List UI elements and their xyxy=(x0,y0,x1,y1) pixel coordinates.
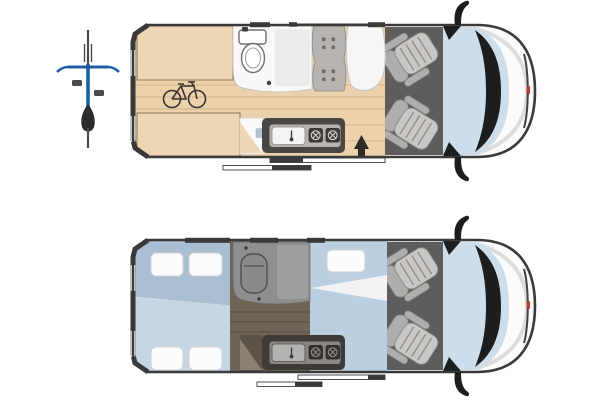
hob-icon xyxy=(309,129,323,143)
sliding-door-rails xyxy=(257,375,385,387)
pillow xyxy=(151,347,183,370)
shower-night xyxy=(277,245,308,299)
saddle xyxy=(81,104,95,132)
hob-icon xyxy=(326,346,340,360)
sliding-door-rails xyxy=(223,158,385,170)
dinette-bench xyxy=(312,26,346,91)
rear-cabinet-bottom xyxy=(137,113,240,156)
handlebar-end-right xyxy=(108,67,119,72)
pillow xyxy=(151,253,183,276)
pillow xyxy=(189,347,222,370)
handlebar-end-left xyxy=(57,67,68,72)
toilet-icon xyxy=(239,27,266,73)
hob-icon xyxy=(326,129,340,143)
kitchen-block-night xyxy=(262,335,345,370)
bike-rack-marker-icon xyxy=(55,28,121,150)
floorplan-canvas xyxy=(0,0,600,402)
dinette-table xyxy=(346,26,385,90)
night-layout-floorplan xyxy=(125,215,545,402)
sink-icon xyxy=(272,344,305,362)
pillow xyxy=(327,250,365,272)
sink-icon xyxy=(272,127,305,145)
pedal-left xyxy=(72,80,82,86)
day-layout-floorplan xyxy=(125,0,545,200)
rear-cabinet-top xyxy=(137,26,233,80)
pedal-right xyxy=(94,90,104,96)
shower-drain-icon xyxy=(267,81,271,85)
hob-icon xyxy=(309,346,323,360)
shower-tray xyxy=(275,29,310,86)
pillow xyxy=(189,253,222,276)
kitchen-block xyxy=(262,118,345,153)
